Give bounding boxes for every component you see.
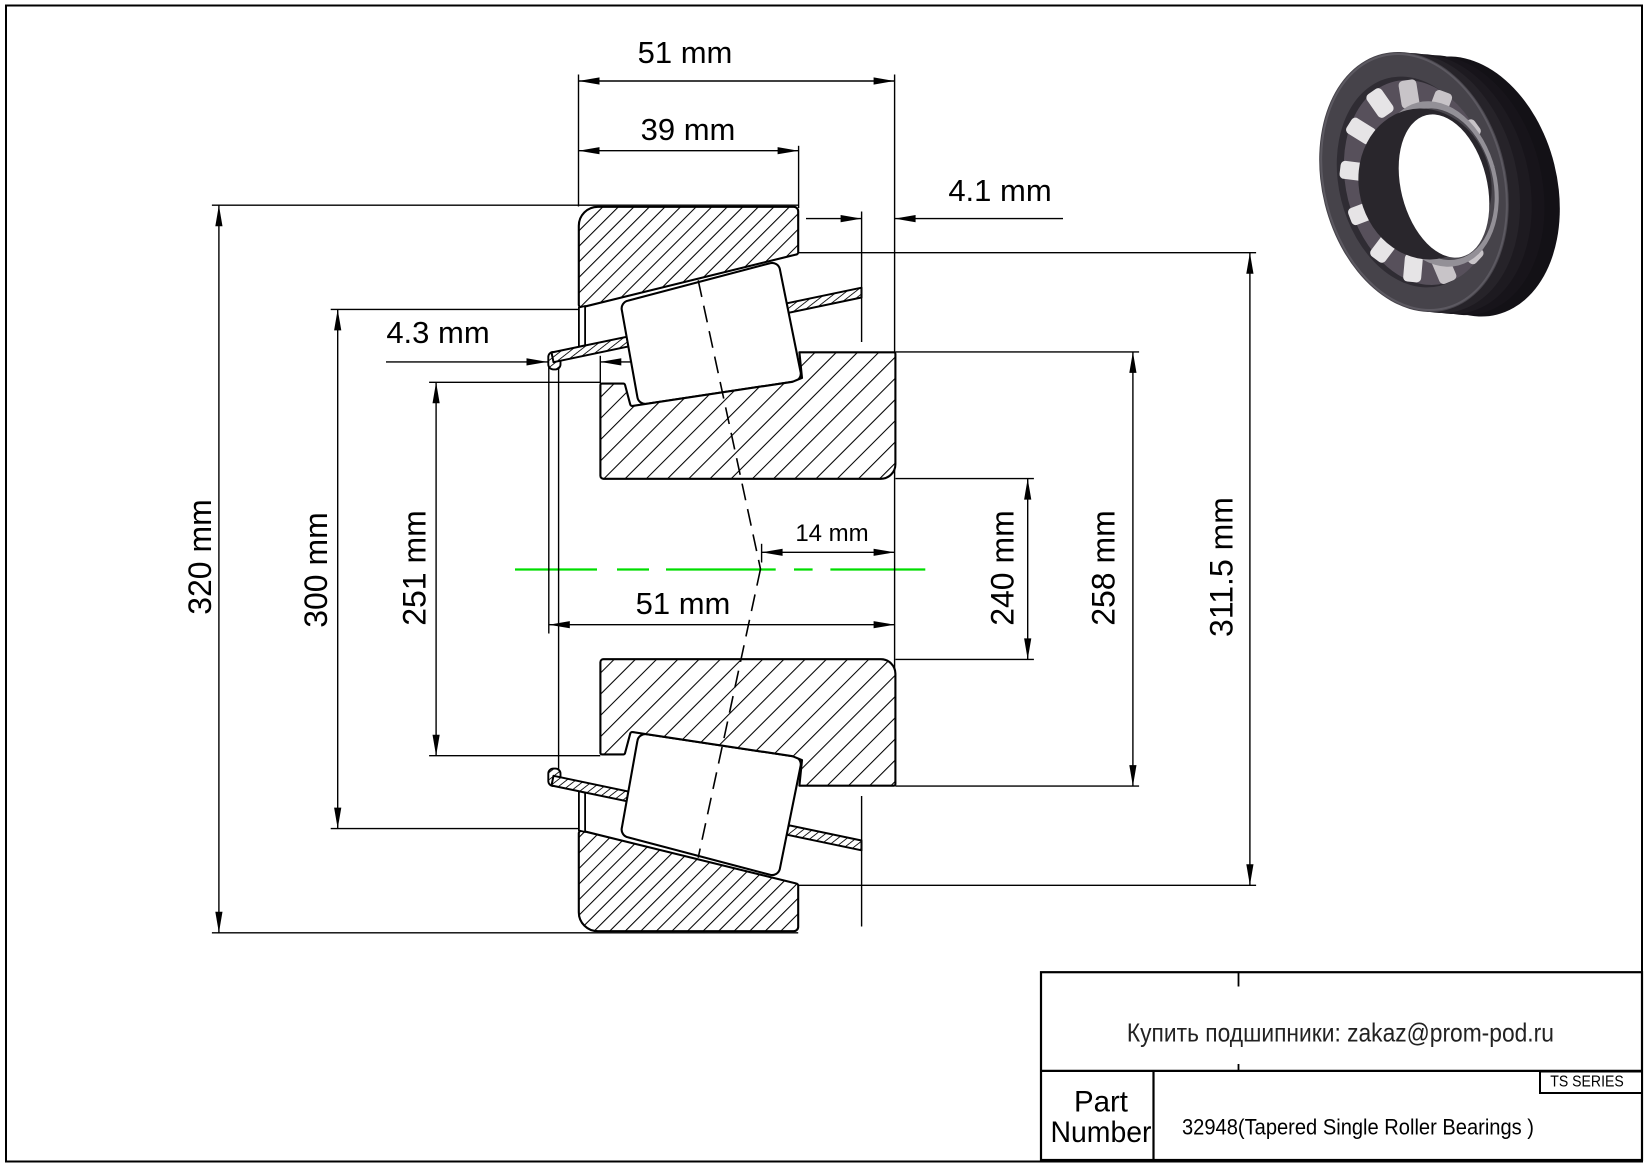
svg-text:TS SERIES: TS SERIES — [1550, 1073, 1624, 1090]
svg-text:Part: Part — [1074, 1086, 1129, 1119]
svg-text:51 mm: 51 mm — [638, 35, 733, 70]
svg-text:4.1 mm: 4.1 mm — [948, 173, 1051, 208]
svg-text:14 mm: 14 mm — [795, 520, 868, 547]
svg-text:240 mm: 240 mm — [985, 510, 1021, 626]
svg-text:320 mm: 320 mm — [182, 499, 218, 615]
svg-text:251 mm: 251 mm — [397, 510, 433, 626]
svg-text:Number: Number — [1051, 1116, 1152, 1149]
svg-text:258 mm: 258 mm — [1086, 510, 1122, 626]
svg-text:300 mm: 300 mm — [298, 512, 334, 628]
svg-text:Купить подшипники: zakaz@prom-: Купить подшипники: zakaz@prom-pod.ru — [1127, 1018, 1554, 1048]
svg-text:51 mm: 51 mm — [636, 586, 731, 621]
svg-text:32948(Tapered Single Roller Be: 32948(Tapered Single Roller Bearings ) — [1182, 1115, 1534, 1140]
svg-text:311.5 mm: 311.5 mm — [1204, 497, 1240, 637]
svg-text:39 mm: 39 mm — [641, 112, 736, 147]
svg-text:4.3 mm: 4.3 mm — [386, 315, 489, 350]
